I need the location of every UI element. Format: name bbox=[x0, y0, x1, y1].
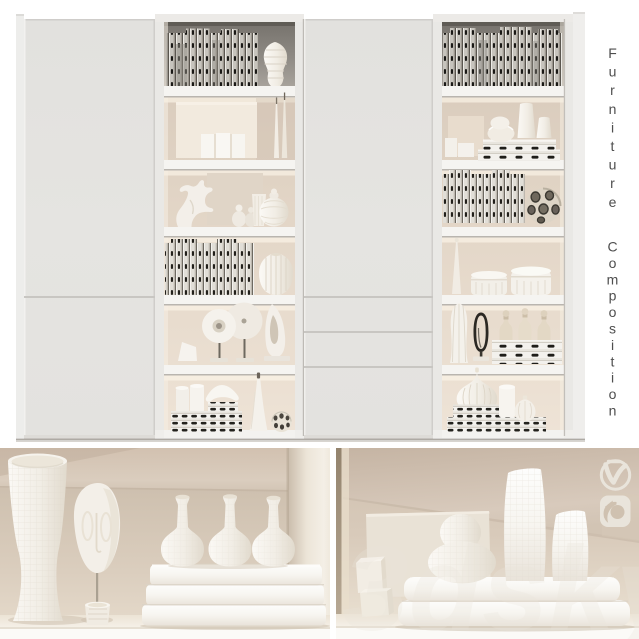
svg-text:i: i bbox=[611, 370, 614, 386]
svg-text:i: i bbox=[611, 337, 614, 353]
svg-text:u: u bbox=[609, 157, 617, 173]
svg-text:n: n bbox=[609, 101, 617, 117]
svg-text:t: t bbox=[611, 353, 615, 369]
svg-text:m: m bbox=[607, 271, 619, 287]
svg-text:s: s bbox=[609, 321, 616, 337]
svg-text:C: C bbox=[607, 239, 617, 255]
svg-text:o: o bbox=[609, 255, 617, 271]
svg-text:p: p bbox=[609, 288, 617, 304]
svg-text:F: F bbox=[608, 45, 617, 61]
svg-text:t: t bbox=[611, 138, 615, 154]
svg-text:n: n bbox=[609, 403, 617, 419]
svg-text:3dsky: 3dsky bbox=[342, 522, 639, 639]
svg-text:u: u bbox=[609, 64, 617, 80]
svg-text:r: r bbox=[610, 82, 615, 98]
svg-text:o: o bbox=[609, 386, 617, 402]
svg-text:i: i bbox=[611, 119, 614, 135]
svg-text:e: e bbox=[609, 194, 617, 210]
svg-text:r: r bbox=[610, 175, 615, 191]
svg-text:o: o bbox=[609, 304, 617, 320]
